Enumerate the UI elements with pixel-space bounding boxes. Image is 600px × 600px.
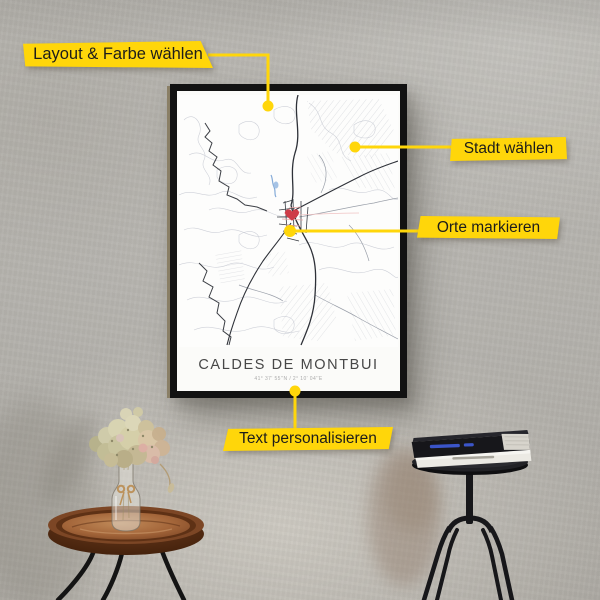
callout-layout-color-label: Layout & Farbe wählen [23, 41, 213, 68]
city-map [179, 95, 398, 347]
scene: CALDES DE MONTBUI 41° 37' 55''N / 2° 10'… [0, 0, 600, 600]
callout-personalize-text[interactable]: Text personalisieren [223, 427, 393, 451]
callout-layout-color[interactable]: Layout & Farbe wählen [23, 41, 213, 68]
poster-coordinates: 41° 37' 55''N / 2° 10' 04''E [177, 376, 400, 382]
callout-choose-city-label: Stadt wählen [450, 137, 567, 161]
map-poster: CALDES DE MONTBUI 41° 37' 55''N / 2° 10'… [170, 84, 407, 398]
callout-personalize-text-label: Text personalisieren [223, 427, 393, 451]
callout-mark-places-label: Orte markieren [417, 216, 560, 239]
callout-mark-places[interactable]: Orte markieren [417, 216, 560, 239]
plant-wall-shadow [0, 400, 109, 600]
callout-choose-city[interactable]: Stadt wählen [450, 137, 567, 161]
poster-title: CALDES DE MONTBUI [177, 357, 400, 373]
